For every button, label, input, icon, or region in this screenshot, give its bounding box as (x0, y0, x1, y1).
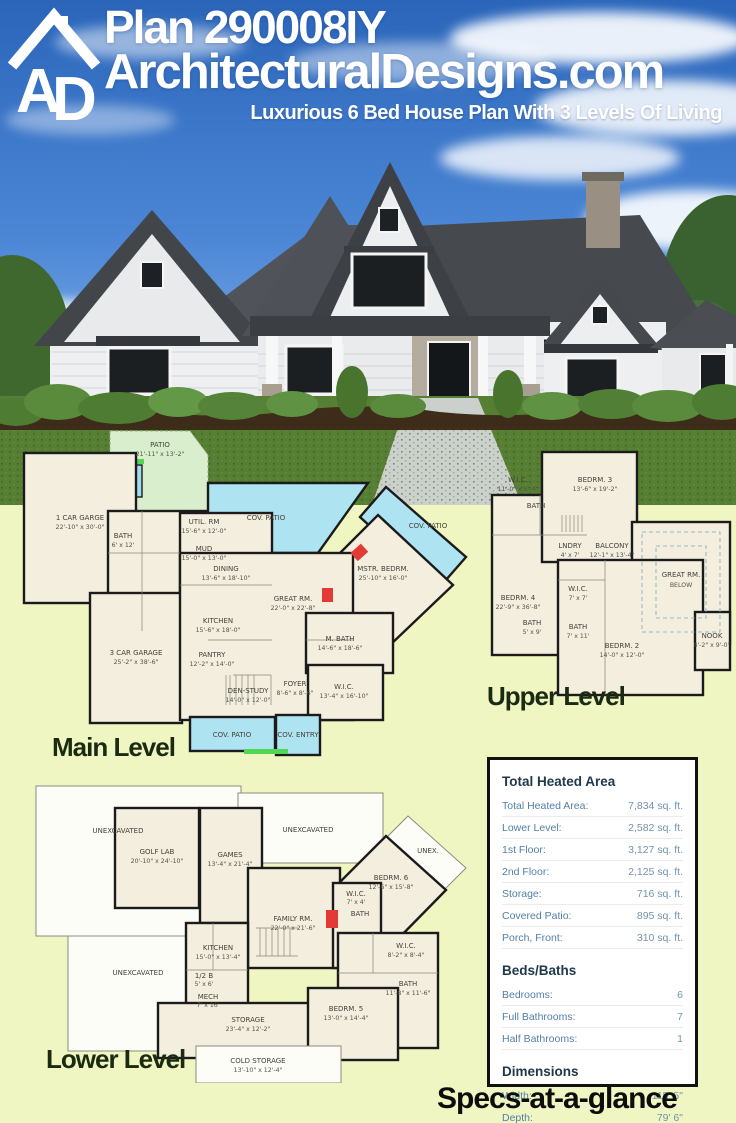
specs-panel: Total Heated Area Total Heated Area:7,83… (487, 757, 698, 1087)
room-label: MUD (196, 545, 213, 553)
room-dims: 14'-6" x 18'-6" (318, 645, 363, 652)
lower-level-label: Lower Level (46, 1044, 185, 1075)
room-dims: 12'-1" x 13'-4" (590, 552, 635, 559)
room-label: BATH (399, 980, 418, 988)
room-dims: 7' x 11' (567, 633, 590, 640)
room-dims: 5' x 6' (195, 981, 214, 988)
room-label: BEDRM. 6 (374, 874, 409, 882)
room-dims: 4' x 7' (561, 552, 580, 559)
room-dims: 8'-6" x 8'-6" (277, 690, 314, 697)
room-label: 3 CAR GARAGE (110, 649, 163, 657)
room-dims: 15'-0" x 13'-4" (196, 954, 241, 961)
room-label: UTIL. RM (189, 518, 220, 526)
room-dims: 7' x 16' (197, 1002, 220, 1009)
spec-row: 1st Floor:3,127 sq. ft. (502, 839, 683, 861)
spec-row: Porch, Front:310 sq. ft. (502, 927, 683, 949)
spec-label: Storage: (502, 888, 542, 900)
room-label: BALCONY (595, 542, 629, 550)
room-label: DEN-STUDY (228, 687, 269, 695)
room-label: W.I.C. (568, 585, 588, 593)
room-label: NOOK (702, 632, 723, 640)
room-label: BEDRM. 2 (605, 642, 639, 650)
ad-logo-icon: A D (6, 4, 102, 124)
spec-label: Total Heated Area: (502, 800, 588, 812)
spec-value: 716 sq. ft. (637, 888, 683, 900)
room-dims: 22'-10" x 30'-0" (56, 524, 105, 531)
room-label: W.I.C. (346, 890, 366, 898)
room-label: COV. ENTRY (277, 731, 319, 739)
room-dims: 5' x 9' (523, 629, 542, 636)
room-label: 1/2 B (195, 972, 213, 980)
room-dims: 22'-9" x 36'-8" (496, 604, 541, 611)
specs-section-heading: Total Heated Area (502, 770, 683, 795)
room-label: BATH (351, 910, 370, 918)
spec-label: Lower Level: (502, 822, 562, 834)
room-dims: 7' x 4' (347, 899, 366, 906)
spec-row: Covered Patio:895 sq. ft. (502, 905, 683, 927)
spec-row: Lower Level:2,582 sq. ft. (502, 817, 683, 839)
spec-label: Full Bathrooms: (502, 1011, 576, 1023)
page: A D Plan 290008IY ArchitecturalDesigns.c… (0, 0, 736, 1123)
room-dims: 13'-6" x 18'-10" (202, 575, 251, 582)
room-dims: 8'-2" x 9'-0" (694, 642, 731, 649)
room-label: GOLF LAB (140, 848, 175, 856)
spec-value: 895 sq. ft. (637, 910, 683, 922)
main-level-plan: PATIO 21'-11" x 13'-2" 1 CAR GARGE 22'-1… (8, 425, 470, 757)
svg-text:D: D (52, 65, 97, 124)
room-dims: 15'-6" x 18'-0" (196, 627, 241, 634)
lower-level-plan: UNEXCAVATED GOLF LAB 20'-10" x 24'-10" G… (8, 758, 470, 1083)
room-label: FOYER (284, 680, 307, 688)
room-dims: 6' x 12' (112, 542, 135, 549)
room-label: UNEXCAVATED (113, 969, 164, 977)
room-dims: 23'-4" x 12'-2" (226, 1026, 271, 1033)
room-label: LNDRY (558, 542, 582, 550)
room-dims: 20'-10" x 24'-10" (131, 858, 184, 865)
room-label: BATH (569, 623, 588, 631)
room-dims: 15'-0" x 13'-0" (182, 555, 227, 562)
room-label: BEDRM. 3 (578, 476, 612, 484)
room-dims: 22'-0" x 21'-6" (271, 925, 316, 932)
room-dims: 8'-2" x 8'-4" (388, 952, 425, 959)
room-label: PATIO (150, 441, 170, 449)
spec-row: Bedrooms:6 (502, 984, 683, 1006)
spec-label: 1st Floor: (502, 844, 546, 856)
room-label: COV. PATIO (409, 522, 448, 530)
room-dims: 25'-2" x 38'-6" (114, 659, 159, 666)
room-dims: 22'-0" x 22'-8" (271, 605, 316, 612)
room-label: MECH (198, 993, 219, 1001)
room-label: BATH (523, 619, 542, 627)
room-dims: 14'-0" x 12'-0" (600, 652, 645, 659)
tagline: Luxurious 6 Bed House Plan With 3 Levels… (250, 102, 722, 125)
room-label: DINING (213, 565, 238, 573)
room-label: 1 CAR GARGE (56, 514, 104, 522)
room-label: GREAT RM. (662, 571, 701, 579)
spec-row: Storage:716 sq. ft. (502, 883, 683, 905)
room-label: BEDRM. 4 (501, 594, 536, 602)
room-label: GAMES (217, 851, 243, 859)
room-dims: 13'-4" x 16'-10" (320, 693, 369, 700)
room-label: BATH (114, 532, 133, 540)
spec-label: Porch, Front: (502, 932, 563, 944)
room-dims: 13'-10" x 12'-4" (234, 1067, 283, 1074)
upper-level-plan: W.I.C. 11'-0" x 6'-4" BEDRM. 3 13'-6" x … (470, 440, 736, 708)
room-dims: 14'-0" x 12'-0" (226, 697, 271, 704)
spec-value: 2,125 sq. ft. (628, 866, 683, 878)
room-dims: 12'-6" x 15'-8" (369, 884, 414, 891)
specs-section-heading: Beds/Baths (502, 959, 683, 984)
room-label: COV. PATIO (213, 731, 252, 739)
upper-level-label: Upper Level (487, 681, 625, 712)
spec-label: Half Bathrooms: (502, 1033, 577, 1045)
spec-label: Bedrooms: (502, 989, 553, 1001)
room-label: GREAT RM. (274, 595, 313, 603)
spec-value: 310 sq. ft. (637, 932, 683, 944)
room-dims: 13'-4" x 21'-4" (208, 861, 253, 868)
room-label: KITCHEN (203, 944, 233, 952)
room-label: W.I.C. (334, 683, 354, 691)
room-label: UNEXCAVATED (93, 827, 144, 835)
spec-label: Covered Patio: (502, 910, 571, 922)
room-label: FAMILY RM. (274, 915, 313, 923)
spec-label: 2nd Floor: (502, 866, 549, 878)
spec-row: 2nd Floor:2,125 sq. ft. (502, 861, 683, 883)
spec-value: 6 (677, 989, 683, 1001)
room-dims: 12'-2" x 14'-0" (190, 661, 235, 668)
room-dims: 7' x 7' (569, 595, 588, 602)
spec-value: 2,582 sq. ft. (628, 822, 683, 834)
spec-value: 7,834 sq. ft. (628, 800, 683, 812)
room-dims: 11'-8" x 11'-6" (386, 990, 431, 997)
room-label: BATH (527, 502, 546, 510)
site-name: ArchitecturalDesigns.com (104, 44, 663, 100)
specs-title: Specs-at-a-glance (437, 1082, 698, 1116)
room-dims: 13'-0" x 14'-4" (324, 1015, 369, 1022)
room-dims: 11'-0" x 6'-4" (498, 486, 539, 493)
room-label: W.I.C. (508, 476, 528, 484)
room-label: COLD STORAGE (230, 1057, 285, 1065)
spec-row: Full Bathrooms:7 (502, 1006, 683, 1028)
room-label: W.I.C. (396, 942, 416, 950)
spec-value: 1 (677, 1033, 683, 1045)
room-label: MSTR. BEDRM. (357, 565, 409, 573)
spec-value: 7 (677, 1011, 683, 1023)
room-dims: 13'-6" x 19'-2" (573, 486, 618, 493)
room-dims: 21'-11" x 13'-2" (136, 451, 185, 458)
room-dims: 25'-10" x 16'-0" (359, 575, 408, 582)
spec-value: 3,127 sq. ft. (628, 844, 683, 856)
room-label: STORAGE (231, 1016, 264, 1024)
spec-row: Half Bathrooms:1 (502, 1028, 683, 1050)
room-label: UNEXCAVATED (283, 826, 334, 834)
room-dims: BELOW (670, 582, 692, 589)
room-label: M. BATH (325, 635, 354, 643)
room-label: PANTRY (199, 651, 226, 659)
room-label: COV. PATIO (247, 514, 286, 522)
room-label: BEDRM. 5 (329, 1005, 363, 1013)
spec-row: Total Heated Area:7,834 sq. ft. (502, 795, 683, 817)
room-dims: 15'-6" x 12'-0" (182, 528, 227, 535)
room-label: UNEX. (417, 847, 439, 855)
room-label: KITCHEN (203, 617, 233, 625)
